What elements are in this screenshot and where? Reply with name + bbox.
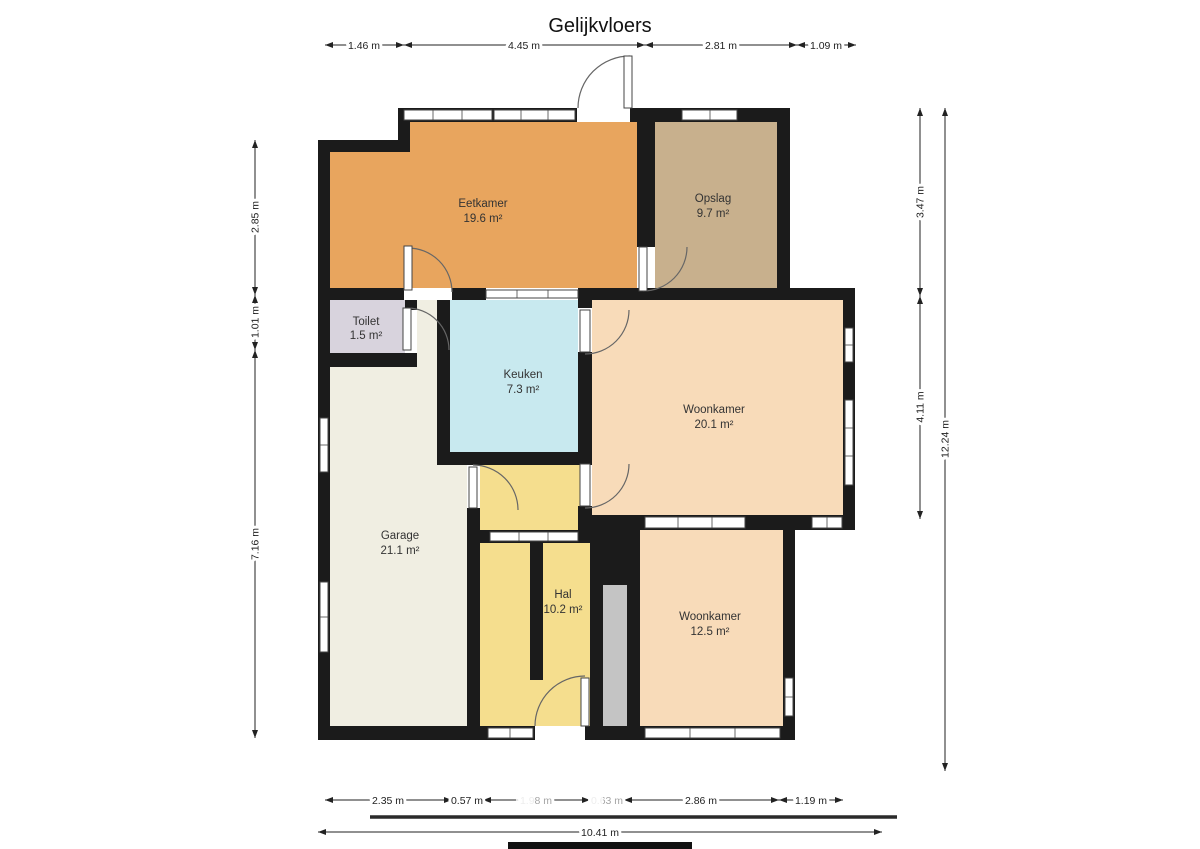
dim-label: 0.57 m xyxy=(451,795,483,807)
wall-segment xyxy=(452,288,486,300)
svg-text:Woonkamer: Woonkamer xyxy=(679,611,741,623)
svg-text:12.5 m²: 12.5 m² xyxy=(691,626,730,638)
wall-segment xyxy=(578,300,592,308)
dim-label-total: 10.41 m xyxy=(581,827,619,839)
window xyxy=(404,110,492,120)
watermark-blob xyxy=(588,791,603,804)
svg-text:10.2 m²: 10.2 m² xyxy=(544,604,583,616)
window xyxy=(488,728,533,738)
svg-text:21.1 m²: 21.1 m² xyxy=(381,545,420,557)
svg-text:20.1 m²: 20.1 m² xyxy=(695,419,734,431)
floorplan-svg: Gelijkvloers xyxy=(0,0,1200,849)
svg-text:Opslag: Opslag xyxy=(695,193,731,205)
window xyxy=(845,328,853,362)
dim-label: 2.85 m xyxy=(250,201,262,233)
window-hal-band xyxy=(490,532,578,541)
floorplan-page: Gelijkvloers xyxy=(0,0,1200,849)
svg-text:Keuken: Keuken xyxy=(503,369,542,381)
dim-label: 1.09 m xyxy=(810,40,842,52)
dim-label: 7.16 m xyxy=(250,528,262,560)
wall-segment xyxy=(318,353,417,367)
window xyxy=(494,110,575,120)
dim-label: 2.35 m xyxy=(372,795,404,807)
room-opslag xyxy=(655,122,777,288)
wall-segment xyxy=(590,530,603,726)
dim-label: 2.81 m xyxy=(705,40,737,52)
door-entrance-top xyxy=(578,56,632,108)
svg-text:19.6 m²: 19.6 m² xyxy=(464,213,503,225)
window xyxy=(645,517,745,528)
dim-top: 1.46 m 4.45 m 2.81 m 1.09 m xyxy=(325,40,856,52)
window xyxy=(645,728,780,738)
dim-label: 4.11 m xyxy=(915,391,927,423)
wall-stair-stub xyxy=(530,543,543,680)
wall-segment xyxy=(318,288,404,300)
window xyxy=(682,110,737,120)
wall-segment xyxy=(637,122,655,247)
wall-segment xyxy=(467,508,480,726)
svg-text:1.5 m²: 1.5 m² xyxy=(350,330,383,342)
watermark-bar xyxy=(508,842,692,849)
dim-label: 4.45 m xyxy=(508,40,540,52)
wall-segment xyxy=(777,108,790,300)
page-title: Gelijkvloers xyxy=(548,15,651,37)
svg-text:Hal: Hal xyxy=(554,589,571,601)
window xyxy=(320,418,328,472)
wall-segment xyxy=(578,506,592,530)
dim-right: 3.47 m 4.11 m 12.24 m xyxy=(915,108,952,771)
dim-label: 3.47 m xyxy=(915,186,927,218)
svg-text:Garage: Garage xyxy=(381,530,419,542)
dim-label: 1.46 m xyxy=(348,40,380,52)
window xyxy=(320,582,328,652)
dim-label: 2.86 m xyxy=(685,795,717,807)
wall-segment xyxy=(578,352,592,462)
wall-segment xyxy=(318,140,410,152)
dim-label-total: 12.24 m xyxy=(940,420,952,458)
wall-segment xyxy=(578,288,855,300)
window-keuken-hatch xyxy=(486,290,578,298)
window xyxy=(845,400,853,485)
wall-segment xyxy=(603,530,640,585)
dim-label: 1.19 m xyxy=(795,795,827,807)
window-small xyxy=(812,517,842,528)
svg-text:Toilet: Toilet xyxy=(353,316,381,328)
svg-text:7.3 m²: 7.3 m² xyxy=(507,384,540,396)
window xyxy=(785,678,793,716)
watermark-blob xyxy=(516,791,534,804)
dim-label: 1.01 m xyxy=(250,306,262,338)
svg-text:Eetkamer: Eetkamer xyxy=(458,198,507,210)
wall-segment xyxy=(627,585,640,726)
wall-segment xyxy=(437,452,592,465)
dim-left: 2.85 m 1.01 m 7.16 m xyxy=(250,140,262,738)
svg-text:9.7 m²: 9.7 m² xyxy=(697,208,730,220)
svg-text:Woonkamer: Woonkamer xyxy=(683,404,745,416)
shaft xyxy=(603,585,627,726)
wall-segment xyxy=(437,300,450,465)
